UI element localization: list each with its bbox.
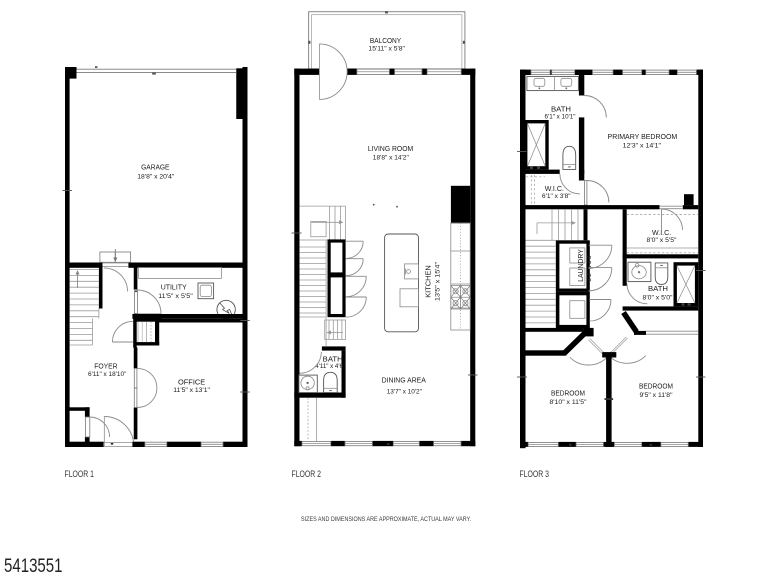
svg-text:11'5" x 13'1": 11'5" x 13'1" (173, 387, 210, 394)
svg-text:W.I.C.: W.I.C. (652, 228, 671, 237)
svg-text:13'7" x 10'2": 13'7" x 10'2" (387, 388, 422, 395)
svg-text:6'1" x 10'1": 6'1" x 10'1" (545, 114, 576, 121)
svg-text:FLOOR 2: FLOOR 2 (292, 469, 322, 479)
svg-text:12'3" x 14'1": 12'3" x 14'1" (623, 142, 661, 149)
svg-text:PRIMARY BEDROOM: PRIMARY BEDROOM (608, 132, 678, 141)
svg-text:13'5" x 15'4": 13'5" x 15'4" (435, 262, 442, 301)
svg-text:SIZES AND DIMENSIONS ARE APPRO: SIZES AND DIMENSIONS ARE APPROXIMATE, AC… (301, 516, 471, 523)
svg-text:KITCHEN: KITCHEN (424, 265, 433, 298)
svg-text:4'11" x 4'6": 4'11" x 4'6" (315, 363, 345, 370)
svg-text:BEDROOM: BEDROOM (551, 389, 585, 398)
svg-text:BATH: BATH (648, 284, 668, 293)
svg-text:15'11" x 5'8": 15'11" x 5'8" (368, 46, 405, 53)
svg-text:BALCONY: BALCONY (370, 36, 401, 45)
svg-text:11'5" x 5'5": 11'5" x 5'5" (158, 293, 193, 300)
svg-text:DINING AREA: DINING AREA (382, 376, 427, 385)
svg-text:8'0" x 5'0": 8'0" x 5'0" (643, 294, 673, 301)
svg-text:18'8" x 20'4": 18'8" x 20'4" (137, 173, 174, 180)
svg-text:LAUNDRY: LAUNDRY (576, 249, 585, 282)
svg-text:FLOOR 3: FLOOR 3 (520, 469, 550, 479)
svg-text:BEDROOM: BEDROOM (639, 382, 673, 391)
svg-text:W.I.C.: W.I.C. (545, 184, 564, 193)
svg-text:BATH: BATH (551, 105, 571, 114)
svg-text:8'10" x 11'5": 8'10" x 11'5" (550, 399, 587, 406)
svg-text:6'11" x 18'10": 6'11" x 18'10" (88, 371, 126, 378)
svg-text:5413551: 5413551 (4, 556, 63, 576)
svg-text:8'0" x 5'5": 8'0" x 5'5" (647, 237, 677, 244)
svg-text:UTILITY: UTILITY (161, 282, 187, 291)
svg-text:GARAGE: GARAGE (141, 163, 169, 172)
svg-text:FLOOR 1: FLOOR 1 (65, 469, 95, 479)
svg-text:6'1" x 3'8": 6'1" x 3'8" (542, 193, 571, 200)
svg-text:LIVING ROOM: LIVING ROOM (368, 144, 413, 153)
svg-text:18'8" x 14'2": 18'8" x 14'2" (373, 154, 409, 161)
svg-text:9'5" x 11'8": 9'5" x 11'8" (640, 392, 673, 399)
svg-text:FOYER: FOYER (94, 362, 118, 371)
svg-text:OFFICE: OFFICE (178, 377, 205, 386)
